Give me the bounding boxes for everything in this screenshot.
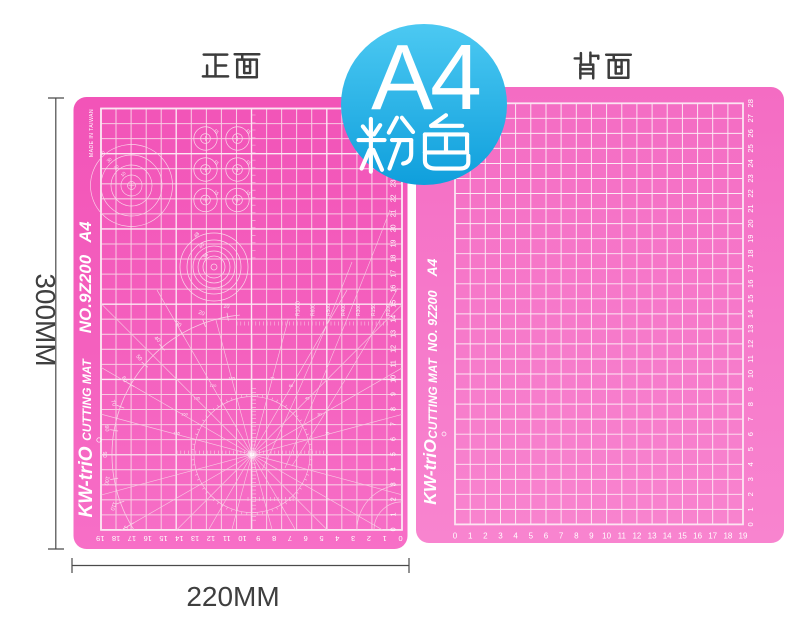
svg-text:18: 18 <box>746 250 755 258</box>
svg-text:30: 30 <box>317 412 322 417</box>
svg-text:MADE IN TAIWAN: MADE IN TAIWAN <box>89 109 95 157</box>
svg-text:9: 9 <box>746 387 755 391</box>
svg-text:R400: R400 <box>341 304 347 316</box>
svg-text:NO.9Z200: NO.9Z200 <box>76 254 95 333</box>
svg-text:220MM: 220MM <box>186 581 279 612</box>
svg-text:NO. 9Z200: NO. 9Z200 <box>426 290 440 351</box>
svg-text:13: 13 <box>648 532 657 541</box>
svg-text:2: 2 <box>746 492 755 496</box>
svg-text:2: 2 <box>367 534 371 543</box>
svg-text:19: 19 <box>739 532 748 541</box>
svg-text:19: 19 <box>391 240 398 248</box>
svg-text:15: 15 <box>678 532 687 541</box>
svg-text:0: 0 <box>746 522 755 526</box>
svg-text:20: 20 <box>746 219 755 227</box>
svg-text:2: 2 <box>483 532 488 541</box>
svg-text:16: 16 <box>693 532 702 541</box>
svg-text:KW-triO: KW-triO <box>420 439 440 505</box>
svg-text:21: 21 <box>746 204 755 212</box>
svg-text:CUTTING MAT: CUTTING MAT <box>426 357 440 439</box>
svg-text:19: 19 <box>96 534 104 543</box>
svg-text:18: 18 <box>723 532 732 541</box>
svg-text:15: 15 <box>325 430 330 435</box>
svg-text:A4: A4 <box>371 25 479 129</box>
svg-text:17: 17 <box>746 265 755 273</box>
svg-text:7: 7 <box>559 532 564 541</box>
svg-text:3: 3 <box>391 482 398 486</box>
svg-text:45: 45 <box>305 395 310 400</box>
svg-text:18: 18 <box>112 534 120 543</box>
svg-text:10: 10 <box>746 370 755 378</box>
svg-text:165: 165 <box>173 430 180 435</box>
svg-text:4: 4 <box>391 467 398 471</box>
svg-text:15: 15 <box>159 534 167 543</box>
svg-text:4: 4 <box>335 534 339 543</box>
svg-text:8: 8 <box>272 534 276 543</box>
svg-text:14: 14 <box>663 532 672 541</box>
svg-text:11: 11 <box>618 532 627 541</box>
svg-text:5: 5 <box>391 452 398 456</box>
svg-text:6: 6 <box>304 534 308 543</box>
svg-text:3: 3 <box>746 477 755 481</box>
svg-text:10: 10 <box>223 303 230 310</box>
svg-text:17: 17 <box>708 532 717 541</box>
svg-text:22: 22 <box>746 189 755 197</box>
svg-text:3: 3 <box>351 534 355 543</box>
svg-text:9: 9 <box>256 534 260 543</box>
svg-text:A4: A4 <box>77 221 95 243</box>
svg-text:8: 8 <box>746 402 755 406</box>
svg-text:28: 28 <box>746 99 755 107</box>
svg-text:150: 150 <box>173 580 184 590</box>
svg-text:1: 1 <box>468 532 473 541</box>
svg-text:5: 5 <box>529 532 534 541</box>
svg-text:0: 0 <box>391 527 398 531</box>
svg-text:60: 60 <box>289 383 294 388</box>
svg-text:8: 8 <box>391 407 398 411</box>
svg-text:6: 6 <box>746 432 755 436</box>
svg-text:21: 21 <box>391 209 398 217</box>
svg-text:13: 13 <box>191 534 199 543</box>
svg-text:10: 10 <box>602 532 611 541</box>
svg-text:20: 20 <box>391 224 398 232</box>
svg-text:14: 14 <box>391 315 398 323</box>
svg-text:10: 10 <box>391 375 398 383</box>
svg-text:17: 17 <box>391 270 398 278</box>
svg-text:8: 8 <box>574 532 579 541</box>
svg-text:1: 1 <box>383 534 387 543</box>
svg-text:80: 80 <box>103 425 110 432</box>
svg-text:12: 12 <box>632 532 641 541</box>
svg-text:R1000: R1000 <box>296 301 302 316</box>
svg-text:15: 15 <box>391 300 398 308</box>
svg-text:12: 12 <box>207 534 215 543</box>
svg-text:12: 12 <box>746 340 755 348</box>
svg-text:16: 16 <box>391 285 398 293</box>
svg-text:9: 9 <box>589 532 594 541</box>
svg-text:6: 6 <box>391 437 398 441</box>
svg-text:11: 11 <box>223 534 231 543</box>
svg-text:13: 13 <box>746 325 755 333</box>
svg-text:25: 25 <box>746 144 755 152</box>
svg-text:0: 0 <box>398 534 402 543</box>
svg-text:7: 7 <box>288 534 292 543</box>
svg-text:300MM: 300MM <box>30 273 61 366</box>
svg-text:12: 12 <box>391 345 398 353</box>
svg-text:4: 4 <box>513 532 518 541</box>
svg-text:27: 27 <box>746 114 755 122</box>
svg-text:18: 18 <box>391 255 398 263</box>
svg-text:7: 7 <box>746 417 755 421</box>
svg-text:90: 90 <box>101 452 107 458</box>
svg-text:1: 1 <box>391 512 398 516</box>
svg-text:14: 14 <box>175 534 183 543</box>
svg-text:3: 3 <box>498 532 503 541</box>
svg-text:105: 105 <box>228 375 235 380</box>
svg-text:R150: R150 <box>371 304 377 316</box>
svg-text:1: 1 <box>746 507 755 511</box>
svg-text:17: 17 <box>128 534 136 543</box>
svg-text:11: 11 <box>746 355 755 363</box>
svg-text:R500: R500 <box>326 304 332 316</box>
svg-text:5: 5 <box>319 534 323 543</box>
svg-text:26: 26 <box>746 129 755 137</box>
svg-text:7: 7 <box>391 422 398 426</box>
svg-text:13: 13 <box>391 330 398 338</box>
svg-text:11: 11 <box>391 360 398 367</box>
svg-text:19: 19 <box>746 235 755 243</box>
svg-text:120: 120 <box>210 383 217 388</box>
svg-text:CUTTING MAT: CUTTING MAT <box>80 357 94 440</box>
svg-text:6: 6 <box>544 532 549 541</box>
svg-text:15: 15 <box>746 295 755 303</box>
svg-text:4: 4 <box>746 462 755 466</box>
svg-text:2: 2 <box>391 497 398 501</box>
svg-text:A4: A4 <box>424 258 440 277</box>
svg-text:135: 135 <box>193 395 200 400</box>
svg-text:9: 9 <box>391 392 398 396</box>
svg-text:10: 10 <box>238 534 246 543</box>
svg-text:16: 16 <box>144 534 152 543</box>
svg-text:75: 75 <box>270 375 275 380</box>
svg-text:5: 5 <box>746 447 755 451</box>
svg-text:R300: R300 <box>356 304 362 316</box>
svg-text:14: 14 <box>746 310 755 318</box>
svg-text:22: 22 <box>391 194 398 202</box>
svg-text:23: 23 <box>746 174 755 182</box>
svg-text:0: 0 <box>453 532 458 541</box>
svg-text:16: 16 <box>746 280 755 288</box>
svg-text:23: 23 <box>391 179 398 187</box>
svg-text:24: 24 <box>746 159 755 167</box>
svg-text:R600: R600 <box>311 304 317 316</box>
svg-text:150: 150 <box>181 412 188 417</box>
svg-text:KW-triO: KW-triO <box>76 446 97 517</box>
